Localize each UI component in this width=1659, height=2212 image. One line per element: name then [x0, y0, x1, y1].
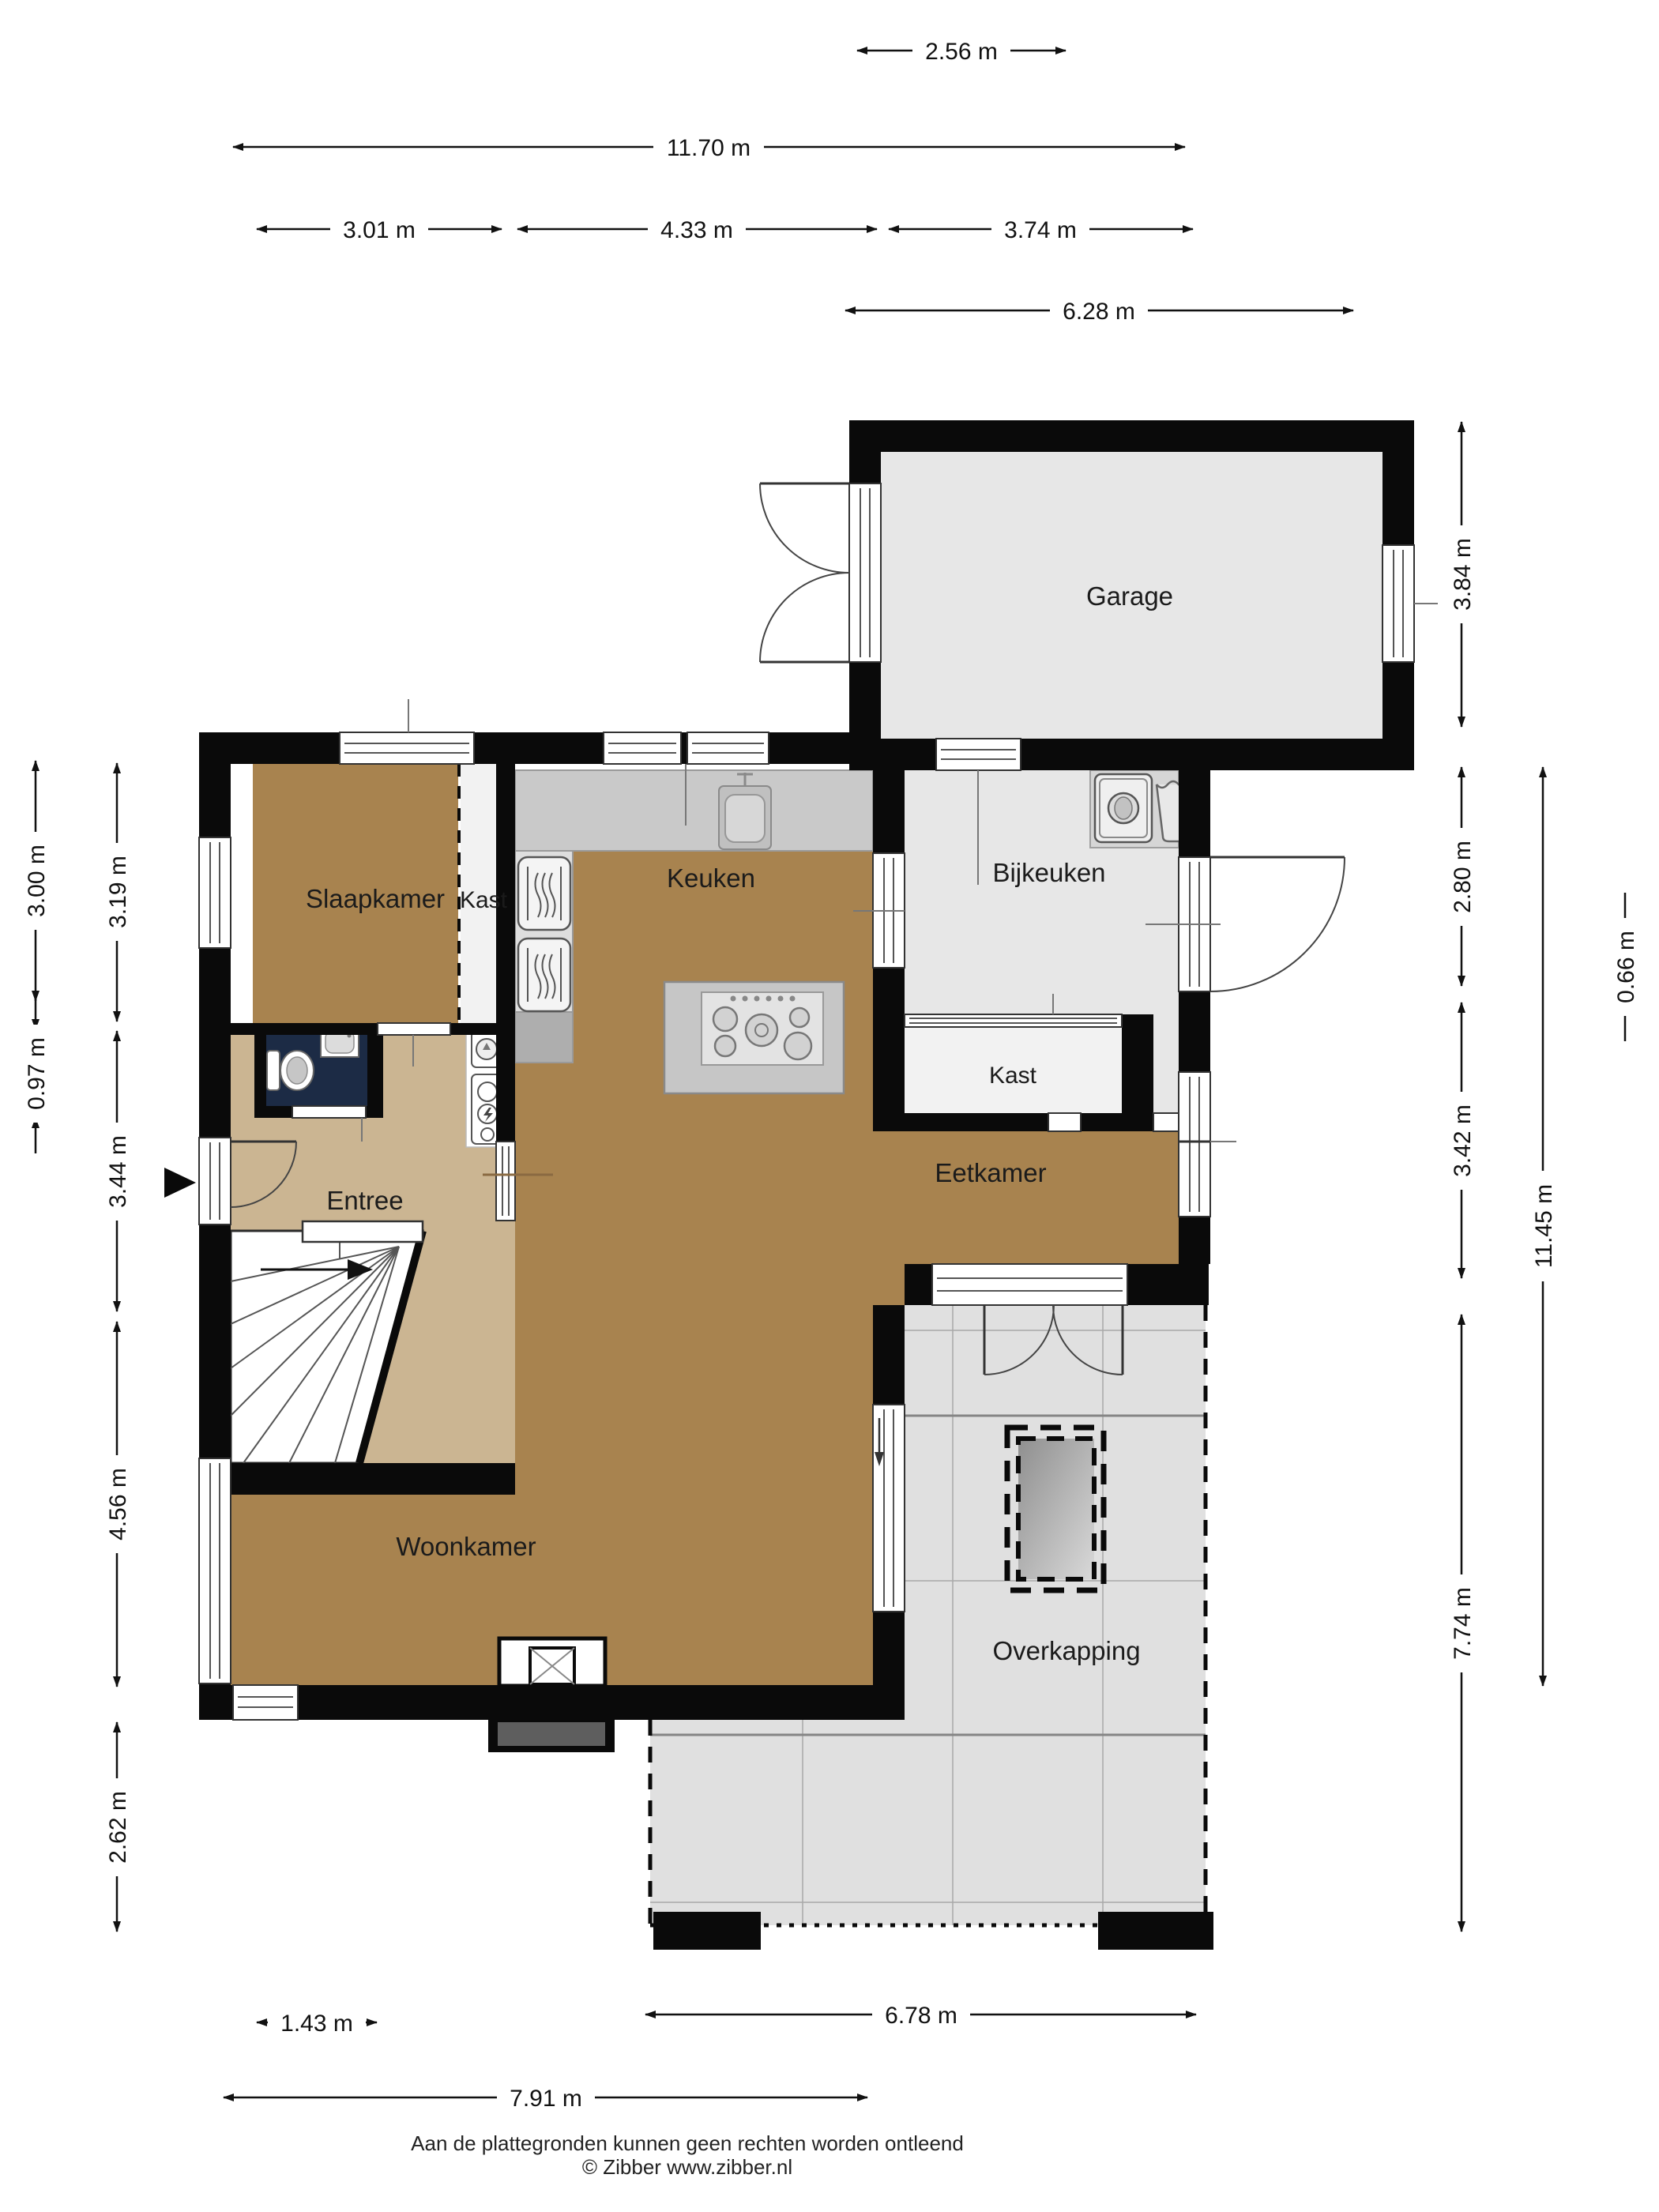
- dim-0-66: 0.66 m: [1609, 893, 1641, 1041]
- svg-text:2.80 m: 2.80 m: [1450, 841, 1476, 913]
- svg-text:2.56 m: 2.56 m: [925, 39, 998, 65]
- floorplan-svg: Garage Bijkeuken Kast Keuken Slaapkamer …: [0, 0, 1659, 2212]
- garage-double-door: [760, 483, 881, 662]
- dim-6-28: 6.28 m: [845, 295, 1353, 326]
- label-bijkeuken: Bijkeuken: [992, 858, 1105, 887]
- svg-text:3.00 m: 3.00 m: [24, 845, 50, 917]
- dim-4-56: 4.56 m: [101, 1322, 133, 1687]
- dim-3-01: 3.01 m: [257, 213, 502, 245]
- toilet-icon: [267, 1051, 314, 1090]
- entrance-arrow-icon: [164, 1168, 196, 1198]
- svg-text:0.66 m: 0.66 m: [1613, 931, 1639, 1003]
- dim-0-97: 0.97 m: [20, 994, 51, 1153]
- label-slaapkamer: Slaapkamer: [306, 884, 445, 913]
- wall-garage-north: [849, 420, 1414, 452]
- window-woonkamer-south: [233, 1685, 298, 1720]
- svg-text:3.19 m: 3.19 m: [105, 856, 131, 928]
- svg-text:4.33 m: 4.33 m: [660, 217, 733, 243]
- label-garage: Garage: [1086, 581, 1173, 611]
- dimensions-right: 3.84 m 2.80 m 3.42 m 7.74 m 11.45 m 0.66…: [1446, 422, 1641, 1932]
- cabinet-base: [515, 1012, 573, 1063]
- stair-landing: [303, 1221, 423, 1242]
- wall-kast-east: [1122, 1014, 1153, 1113]
- footer-line2: © Zibber www.zibber.nl: [582, 2155, 792, 2179]
- label-entree: Entree: [326, 1186, 403, 1215]
- window-garage-east: [1382, 545, 1438, 662]
- wall-below-stairs: [199, 1463, 515, 1495]
- dimensions-top: 2.56 m 11.70 m 3.01 m 4.33 m 3.74 m 6.28…: [233, 35, 1353, 326]
- svg-text:6.78 m: 6.78 m: [885, 2003, 957, 2029]
- oven-icon: [518, 939, 570, 1011]
- svg-text:2.62 m: 2.62 m: [105, 1791, 131, 1864]
- floorplan-page: Garage Bijkeuken Kast Keuken Slaapkamer …: [0, 0, 1659, 2212]
- wall-toilet-west: [254, 1035, 266, 1118]
- dimensions-bottom: 1.43 m 6.78 m 7.91 m: [224, 1999, 1196, 2113]
- sill-bijkeuken-eetkamer: [1153, 1113, 1179, 1131]
- wall-toilet-east: [367, 1035, 383, 1118]
- wall-west-upper: [199, 732, 231, 837]
- svg-text:6.28 m: 6.28 m: [1063, 299, 1135, 325]
- dim-3-19: 3.19 m: [101, 763, 133, 1021]
- dim-3-00: 3.00 m: [20, 761, 51, 1001]
- window-woonkamer-terrace: [873, 1405, 905, 1612]
- wall-north: [199, 732, 881, 764]
- dim-1-43: 1.43 m: [257, 2007, 377, 2038]
- dim-4-33: 4.33 m: [517, 213, 877, 245]
- label-eetkamer: Eetkamer: [935, 1158, 1046, 1187]
- label-kast-slaapkamer: Kast: [460, 887, 508, 913]
- label-woonkamer: Woonkamer: [396, 1532, 536, 1561]
- hob-icon: [702, 992, 823, 1065]
- window-eetkamer-east: [1179, 1072, 1236, 1217]
- window-slaapkamer-north: [340, 699, 474, 764]
- svg-text:3.84 m: 3.84 m: [1450, 538, 1476, 611]
- window-slaapkamer-west: [199, 837, 231, 948]
- footer-disclaimer: Aan de plattegronden kunnen geen rechten…: [411, 2131, 964, 2179]
- terrace-tiles-main: [905, 1305, 1206, 1925]
- oven-icon: [518, 857, 570, 930]
- wall-slaapkamer-south: [199, 1023, 515, 1035]
- wall-south-woonkamer: [199, 1685, 905, 1720]
- label-overkapping: Overkapping: [992, 1636, 1140, 1665]
- terrace-post-left: [653, 1912, 761, 1950]
- dim-2-80: 2.80 m: [1446, 767, 1477, 986]
- svg-text:0.97 m: 0.97 m: [24, 1037, 50, 1110]
- dim-3-44: 3.44 m: [101, 1031, 133, 1311]
- label-keuken: Keuken: [667, 863, 755, 893]
- dim-7-91: 7.91 m: [224, 2082, 867, 2113]
- svg-text:3.01 m: 3.01 m: [343, 217, 416, 243]
- svg-text:11.45 m: 11.45 m: [1531, 1184, 1557, 1268]
- svg-text:3.44 m: 3.44 m: [105, 1135, 131, 1208]
- svg-text:3.74 m: 3.74 m: [1004, 217, 1077, 243]
- svg-text:7.74 m: 7.74 m: [1450, 1587, 1476, 1660]
- svg-text:3.42 m: 3.42 m: [1450, 1104, 1476, 1177]
- dim-3-42: 3.42 m: [1446, 1003, 1477, 1278]
- footer-line1: Aan de plattegronden kunnen geen rechten…: [411, 2131, 964, 2155]
- svg-text:11.70 m: 11.70 m: [667, 135, 750, 161]
- sill-kast-south: [1048, 1113, 1081, 1131]
- label-kast-bijkeuken: Kast: [989, 1063, 1037, 1089]
- dim-11-45: 11.45 m: [1527, 767, 1559, 1686]
- wall-west-mid: [199, 948, 231, 1138]
- dim-6-78: 6.78 m: [645, 1999, 1196, 2030]
- dim-11-70: 11.70 m: [233, 131, 1185, 163]
- wall-west-lower: [199, 1224, 231, 1458]
- washer-icon: [1095, 774, 1152, 842]
- svg-text:7.91 m: 7.91 m: [510, 2086, 582, 2112]
- dimensions-left: 3.00 m 0.97 m 3.19 m 3.44 m 4.56 m 2.62 …: [20, 761, 133, 1932]
- terrace-post-right: [1098, 1912, 1213, 1950]
- dim-3-84: 3.84 m: [1446, 422, 1477, 727]
- wall-kast-south: [873, 1113, 1153, 1131]
- window-keuken-north-a: [604, 732, 681, 764]
- counter-top: [515, 770, 873, 851]
- svg-text:1.43 m: 1.43 m: [280, 2011, 353, 2037]
- dim-2-56: 2.56 m: [857, 35, 1066, 66]
- svg-text:4.56 m: 4.56 m: [105, 1468, 131, 1540]
- dim-7-74: 7.74 m: [1446, 1315, 1477, 1932]
- skylight-icon: [1007, 1428, 1104, 1590]
- dim-2-62: 2.62 m: [101, 1722, 133, 1932]
- dim-3-74: 3.74 m: [889, 213, 1193, 245]
- terrace-tiles-left: [650, 1720, 905, 1925]
- window-woonkamer-west: [199, 1458, 231, 1683]
